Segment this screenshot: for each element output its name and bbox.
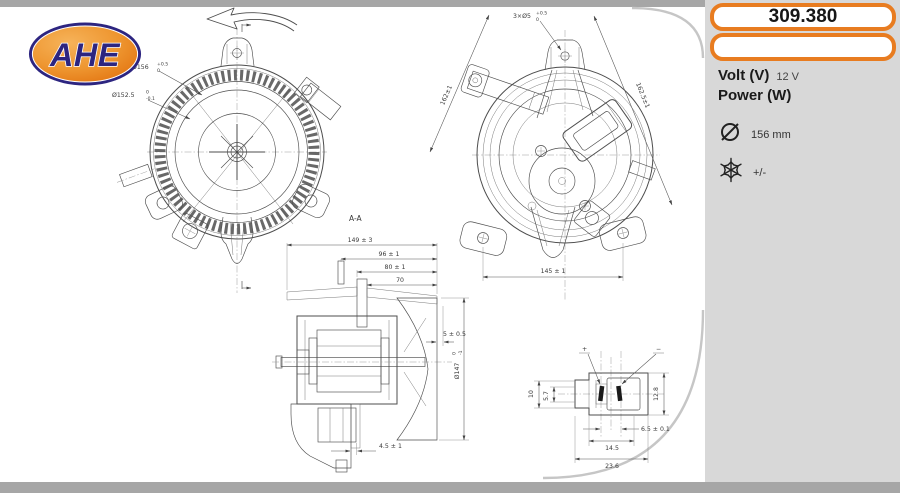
rear-left-wing [458,220,508,257]
dim-sec-fan-lo: -1 [458,350,464,355]
connector-pin-plus [598,386,604,401]
front-right-ear [290,182,332,220]
secondary-box [710,33,896,61]
power-spec-line: Power (W) [718,87,798,104]
spec-sidebar: 309.380 Volt (V) 12 V Power (W) 156 mm [705,0,900,482]
part-number-box: 309.380 [710,3,896,31]
dim-rear-bottom: 145 ± 1 [541,268,566,275]
front-left-stub [115,163,157,189]
rear-square-pad [573,200,611,238]
dim-con-236: 23.6 [605,463,619,470]
dim-sec-fan: Ø147 [453,363,461,380]
volt-value: 12 V [776,71,799,83]
dim-con-128: 12.8 [653,387,660,401]
rear-connector-housing [561,98,634,163]
diameter-spec-line: 156 mm [718,120,791,149]
section-cut-marks [242,24,251,289]
climate-spec-line: +/- [718,157,766,188]
dim-sec-45: 4.5 ± 1 [379,443,402,450]
snowflake-icon [718,157,744,188]
dim-sec-5: 5 ± 0.5 [443,331,466,338]
front-view: Ø156 +0.5 0 Ø152.5 0 -0.1 [112,8,342,293]
dim-sec-149: 149 ± 3 [348,237,373,244]
diameter-icon [718,120,742,149]
section-body [272,261,452,472]
dim-front-inner-hi: 0 [146,90,149,96]
power-label: Power (W) [718,87,791,104]
dim-rear-holes-hi: +0.5 [536,11,547,17]
ahe-logo: AHE [26,20,144,88]
diameter-value: 156 mm [751,129,791,141]
dim-con-57: 5.7 [543,391,550,401]
catalog-page: Ø156 +0.5 0 Ø152.5 0 -0.1 [0,0,900,495]
dim-front-outer-hi: +0.5 [157,62,168,68]
dim-con-10: 10 [528,390,535,398]
section-view: A-A [272,214,469,472]
dim-front-inner: Ø152.5 [112,91,135,99]
dim-con-65: 6.5 ± 0.1 [641,426,670,433]
hub-spokes [209,124,265,180]
rotation-arrow [207,8,297,31]
part-number: 309.380 [769,6,838,28]
connector-pin-minus [616,386,622,401]
dim-rear-right: 162.5±1 [634,82,651,110]
volt-label: Volt (V) [718,67,769,84]
dim-con-145: 14.5 [605,445,619,452]
logo-text: AHE [49,37,121,73]
dim-sec-fan-hi: 0 [452,352,458,355]
dim-rear-holes-lo: 0 [536,17,539,23]
connector-minus-label: − [656,346,661,353]
connector-plus-label: + [582,346,587,353]
connector-dimensions: 10 5.7 12.8 6.5 ± 0.1 14.5 23 [528,346,670,470]
climate-value: +/- [753,167,766,179]
front-top-tab [221,38,254,66]
rear-motor-center [528,146,595,215]
section-label: A-A [349,214,363,223]
rear-view: 3×Ø5 +0.5 0 162±1 162.5±1 145 ± 1 [430,11,672,301]
dim-rear-left: 162±1 [439,84,454,106]
volt-spec-line: Volt (V) 12 V [718,67,799,84]
dim-sec-80: 80 ± 1 [385,264,406,271]
dim-sec-96: 96 ± 1 [379,251,400,258]
connector-detail: 10 5.7 12.8 6.5 ± 0.1 14.5 23 [528,346,670,470]
dim-sec-70: 70 [396,277,404,284]
dim-rear-holes: 3×Ø5 [513,12,531,20]
